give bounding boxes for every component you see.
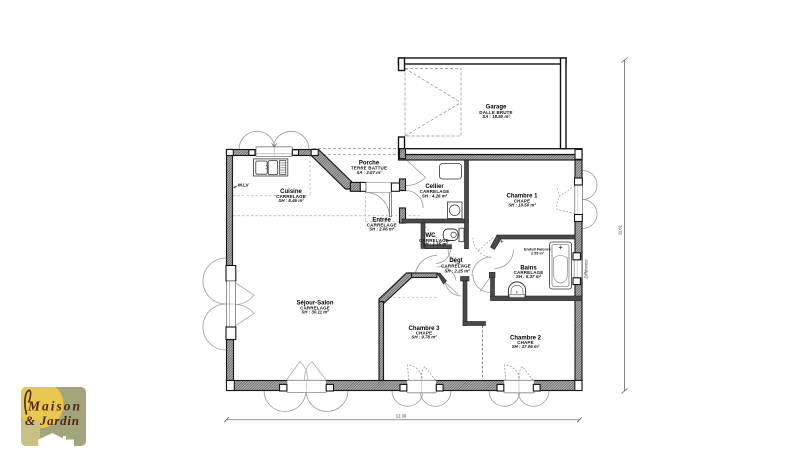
svg-text:SH : 4.26 m²: SH : 4.26 m² (422, 193, 448, 198)
svg-text:SH : 10.50 m²: SH : 10.50 m² (508, 202, 536, 207)
svg-text:SH : 2.25 m²: SH : 2.25 m² (444, 268, 470, 273)
svg-text:M.LV: M.LV (238, 183, 250, 188)
svg-text:Différence: Différence (584, 259, 589, 279)
svg-text:2.55 m²: 2.55 m² (531, 252, 545, 256)
svg-text:SH : 9.78 m²: SH : 9.78 m² (411, 335, 437, 340)
svg-text:Maison: Maison (27, 399, 80, 414)
svg-text:SH : 30.11 m²: SH : 30.11 m² (301, 310, 329, 315)
svg-text:SA : 18.50 m²: SA : 18.50 m² (482, 114, 510, 119)
svg-text:11.61: 11.61 (618, 224, 623, 235)
svg-text:& Jardin: & Jardin (25, 413, 79, 428)
svg-text:SH : 17.06 m²: SH : 17.06 m² (512, 344, 540, 349)
svg-text:SA : 2.67 m²: SA : 2.67 m² (357, 170, 383, 175)
svg-text:12.30: 12.30 (396, 414, 407, 419)
svg-text:SH : 2.06 m²: SH : 2.06 m² (369, 226, 395, 231)
svg-text:SH : 5.37 m²: SH : 5.37 m² (516, 274, 542, 279)
svg-text:SH : 8.46 m²: SH : 8.46 m² (278, 198, 304, 203)
svg-text:SH : 1.35 m²: SH : 1.35 m² (422, 242, 448, 247)
